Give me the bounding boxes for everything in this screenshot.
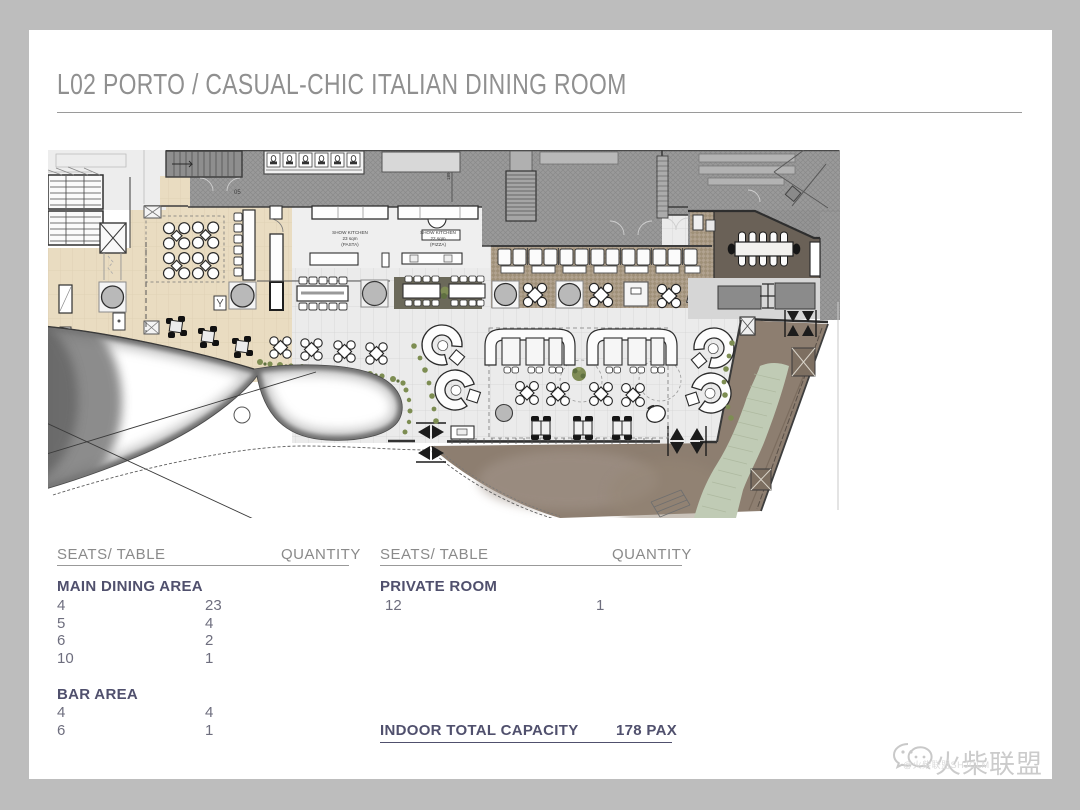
svg-text:22 sqm: 22 sqm: [430, 236, 445, 241]
svg-text:SHOW KITCHEN: SHOW KITCHEN: [420, 230, 456, 235]
svg-text:SHOW KITCHEN: SHOW KITCHEN: [332, 230, 368, 235]
svg-text:23 sqm: 23 sqm: [342, 236, 357, 241]
svg-text:(PIZZA): (PIZZA): [430, 242, 447, 247]
svg-text:(PASTA): (PASTA): [341, 242, 359, 247]
svg-text:05: 05: [234, 190, 241, 196]
